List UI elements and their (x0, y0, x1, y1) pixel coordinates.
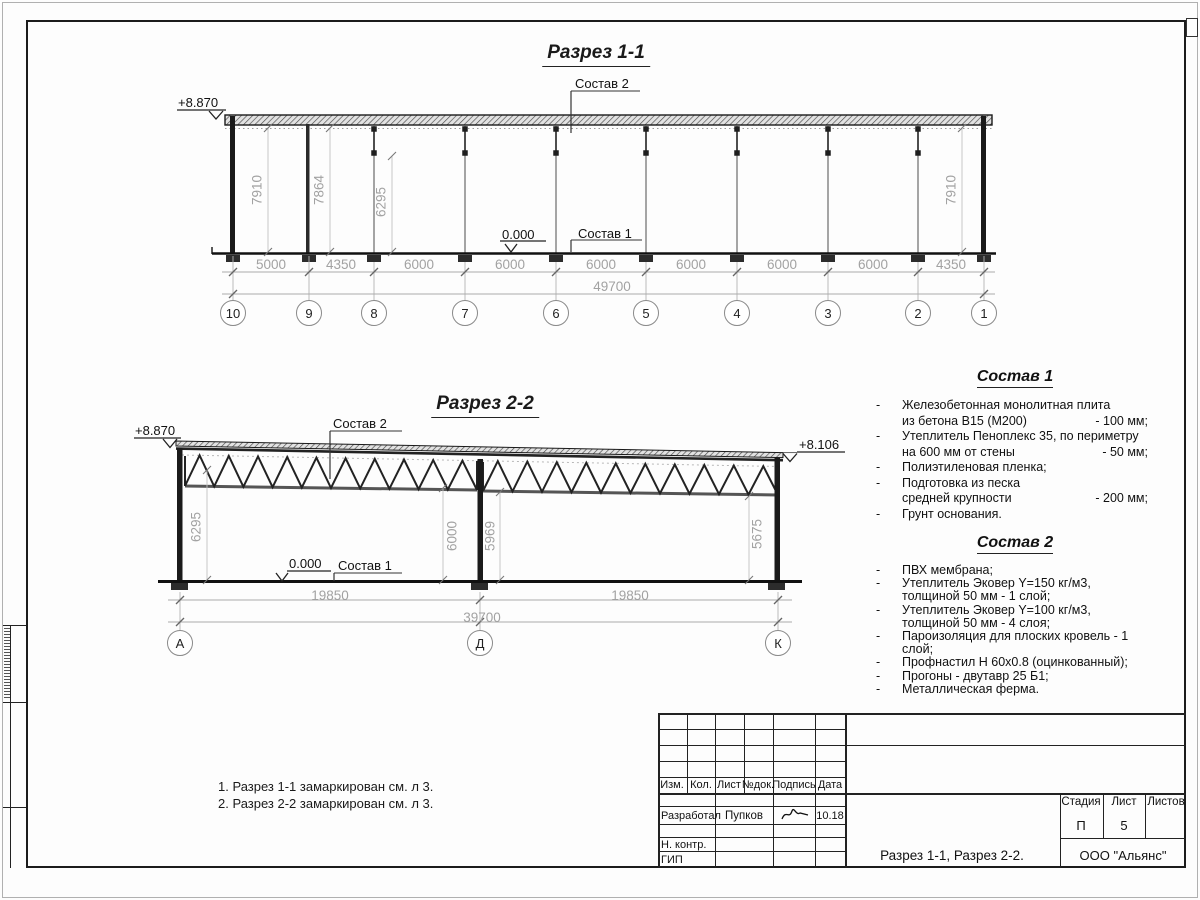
list-item: -Металлическая ферма. (876, 683, 1154, 696)
axis-bubble: 3 (815, 300, 841, 326)
axis-bubble: 9 (296, 300, 322, 326)
section2-leader-sostav2: Состав 2 (333, 416, 387, 431)
dim-label: 19850 (311, 588, 349, 603)
titleblock-line (1145, 793, 1146, 838)
tb-col-kol: Кол. (690, 779, 712, 791)
tb-sheet-label: Лист (1112, 796, 1137, 808)
list-item: -Утеплитель Эковер Y=100 кг/м3, (876, 604, 1154, 617)
section1-title: Разрез 1-1 (542, 42, 650, 67)
list-item: -Полиэтиленовая пленка; (876, 460, 1154, 476)
titleblock-line (658, 745, 1186, 746)
signature-mark (779, 807, 811, 823)
titleblock-line (687, 713, 688, 793)
list-item: -Пароизоляция для плоских кровель - 1 сл… (876, 630, 1154, 656)
dim-label: 6000 (495, 257, 525, 272)
list-item: средней крупности- 200 мм; (876, 491, 1154, 507)
titleblock-line (658, 837, 845, 838)
dim-label: 6000 (586, 257, 616, 272)
list-item: толщиной 50 мм - 1 слой; (876, 590, 1154, 603)
titleblock-line (658, 729, 845, 730)
dim-label: 5000 (256, 257, 286, 272)
tb-company: ООО "Альянс" (1080, 848, 1167, 863)
section1-elev-zero: 0.000 (502, 227, 535, 242)
dim-label: 4350 (936, 257, 966, 272)
axis-bubble: 6 (543, 300, 569, 326)
dim-total-label: 49700 (593, 279, 631, 294)
axis-bubble: 10 (220, 300, 246, 326)
tb-sheet-value: 5 (1120, 818, 1127, 833)
tb-col-list: Лист (717, 779, 741, 791)
axis-bubble: 2 (905, 300, 931, 326)
titleblock-line (658, 777, 845, 778)
compose2-list: Состав 2 -ПВХ мембрана; -Утеплитель Эков… (876, 534, 1154, 696)
vdim-label: 6295 (374, 187, 389, 217)
axis-bubble: 1 (971, 300, 997, 326)
vdim-label: 7910 (250, 175, 265, 205)
note-line: 2. Разрез 2-2 замаркирован см. л 3. (218, 796, 433, 813)
sheet-notes: 1. Разрез 1-1 замаркирован см. л 3. 2. Р… (218, 779, 433, 812)
tb-developed-name: Пупков (725, 810, 763, 822)
dim-label: 6000 (676, 257, 706, 272)
dim-total-label: 39700 (463, 610, 501, 625)
tb-stage-value: П (1076, 818, 1085, 833)
tb-col-izm: Изм. (660, 779, 684, 791)
tb-col-doc: №док. (742, 779, 774, 791)
list-item: на 600 мм от стены- 50 мм; (876, 445, 1154, 461)
list-item: -Грунт основания. (876, 507, 1154, 523)
titleblock-line (1060, 838, 1186, 839)
axis-bubble: А (167, 630, 193, 656)
tb-ncontr-label: Н. контр. (661, 839, 706, 851)
dim-label: 19850 (611, 588, 649, 603)
vdim-label: 5675 (750, 519, 765, 549)
tb-date: 10.18 (816, 810, 844, 822)
tb-gip-label: ГИП (661, 854, 683, 866)
tb-sheets-label: Листов (1147, 796, 1184, 808)
vdim-label: 6000 (445, 521, 460, 551)
tb-stage-label: Стадия (1061, 796, 1100, 808)
vdim-label: 7910 (944, 175, 959, 205)
list-item: -Подготовка из песка (876, 476, 1154, 492)
drawing-sheet: Разрез 1-1 Состав 2 +8.870 0.000 Состав … (0, 0, 1200, 900)
dim-label: 4350 (326, 257, 356, 272)
tb-col-podpis: Подпись (772, 779, 816, 791)
titleblock-line (1103, 793, 1104, 838)
tb-col-data: Дата (818, 779, 842, 791)
section1-leader-sostav2: Состав 2 (575, 76, 629, 91)
list-item: из бетона В15 (М200)- 100 мм; (876, 414, 1154, 430)
axis-bubble: 5 (633, 300, 659, 326)
note-line: 1. Разрез 1-1 замаркирован см. л 3. (218, 779, 433, 796)
axis-bubble: 7 (452, 300, 478, 326)
tb-developed-label: Разработал (661, 810, 721, 822)
axis-bubble: Д (467, 630, 493, 656)
list-item: -Прогоны - двутавр 25 Б1; (876, 670, 1154, 683)
list-item: -Железобетонная монолитная плита (876, 398, 1154, 414)
section2-elev-zero: 0.000 (289, 556, 322, 571)
compose1-title: Состав 1 (916, 368, 1114, 386)
titleblock-line (658, 761, 845, 762)
compose1-list: Состав 1 -Железобетонная монолитная плит… (876, 368, 1154, 522)
section1-leader-sostav1: Состав 1 (578, 226, 632, 241)
titleblock-line (658, 713, 1186, 715)
section2-leader-sostav1: Состав 1 (338, 558, 392, 573)
axis-bubble: 4 (724, 300, 750, 326)
dim-label: 6000 (404, 257, 434, 272)
list-item: -Профнастил Н 60х0.8 (оцинкованный); (876, 656, 1154, 669)
titleblock-line (658, 851, 845, 852)
titleblock-line (658, 806, 845, 807)
section1-elev-top: +8.870 (178, 95, 218, 110)
vdim-label: 7864 (312, 175, 327, 205)
titleblock-line (658, 793, 1186, 795)
dim-label: 6000 (767, 257, 797, 272)
tb-doc-title: Разрез 1-1, Разрез 2-2. (880, 848, 1024, 863)
list-item: -Утеплитель Пеноплекс 35, по периметру (876, 429, 1154, 445)
titleblock-line (658, 824, 845, 825)
axis-bubble: 8 (361, 300, 387, 326)
dim-label: 6000 (858, 257, 888, 272)
section2-title: Разрез 2-2 (431, 393, 539, 418)
titleblock-line (845, 713, 847, 868)
vdim-label: 5969 (483, 521, 498, 551)
titleblock-line (715, 713, 716, 868)
section2-elev-left: +8.870 (135, 423, 175, 438)
axis-bubble: К (765, 630, 791, 656)
section2-elev-right: +8.106 (799, 437, 839, 452)
vdim-label: 6295 (189, 512, 204, 542)
compose2-title: Состав 2 (916, 534, 1114, 552)
